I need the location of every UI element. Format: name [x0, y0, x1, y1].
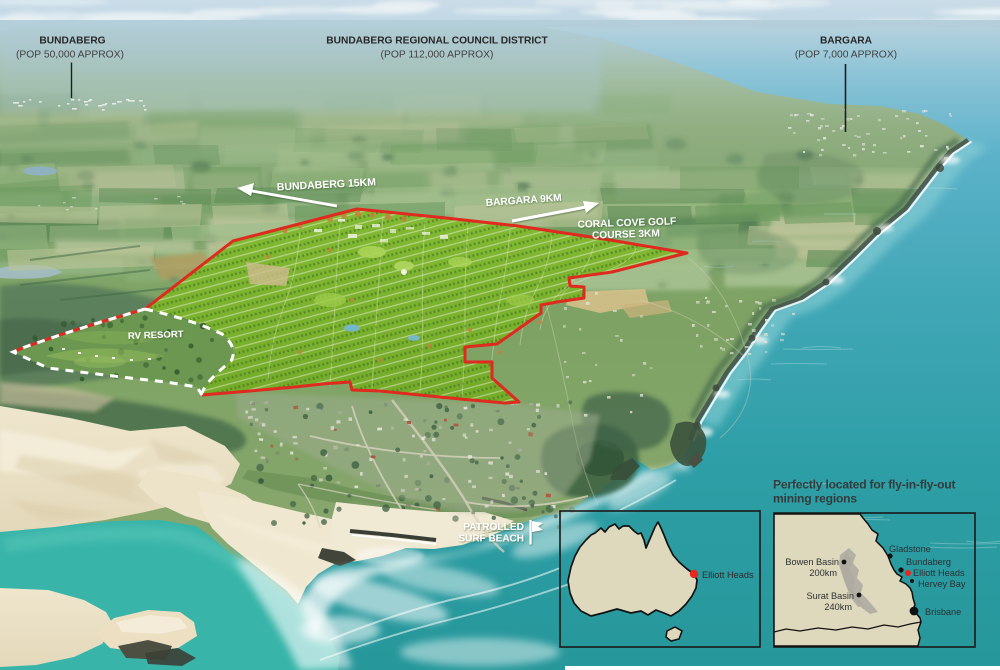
svg-text:RV RESORT: RV RESORT — [128, 329, 184, 342]
svg-text:Bundaberg: Bundaberg — [906, 557, 951, 567]
svg-text:mining regions: mining regions — [773, 492, 857, 506]
svg-text:SURF BEACH: SURF BEACH — [458, 534, 524, 545]
svg-text:Elliott Heads: Elliott Heads — [913, 568, 965, 578]
svg-text:BUNDABERG: BUNDABERG — [39, 36, 105, 47]
svg-text:BARGARA: BARGARA — [820, 36, 873, 47]
svg-text:240km: 240km — [824, 602, 852, 612]
svg-text:Gladstone: Gladstone — [889, 544, 931, 554]
svg-text:200km: 200km — [809, 568, 837, 578]
svg-text:PATROLLED: PATROLLED — [463, 522, 524, 533]
svg-text:Elliott Heads: Elliott Heads — [702, 570, 754, 580]
svg-text:Hervey Bay: Hervey Bay — [918, 579, 966, 589]
svg-text:Bowen Basin: Bowen Basin — [785, 557, 839, 567]
svg-text:(POP 50,000 APPROX): (POP 50,000 APPROX) — [16, 50, 124, 61]
svg-text:Perfectly located for fly-in-f: Perfectly located for fly-in-fly-out — [773, 478, 955, 492]
svg-text:(POP 7,000 APPROX): (POP 7,000 APPROX) — [795, 50, 897, 61]
svg-text:(POP 112,000 APPROX): (POP 112,000 APPROX) — [381, 50, 494, 61]
svg-text:Brisbane: Brisbane — [925, 607, 961, 617]
svg-text:BUNDABERG REGIONAL COUNCIL DIS: BUNDABERG REGIONAL COUNCIL DISTRICT — [326, 36, 548, 47]
svg-text:Surat Basin: Surat Basin — [807, 591, 855, 601]
